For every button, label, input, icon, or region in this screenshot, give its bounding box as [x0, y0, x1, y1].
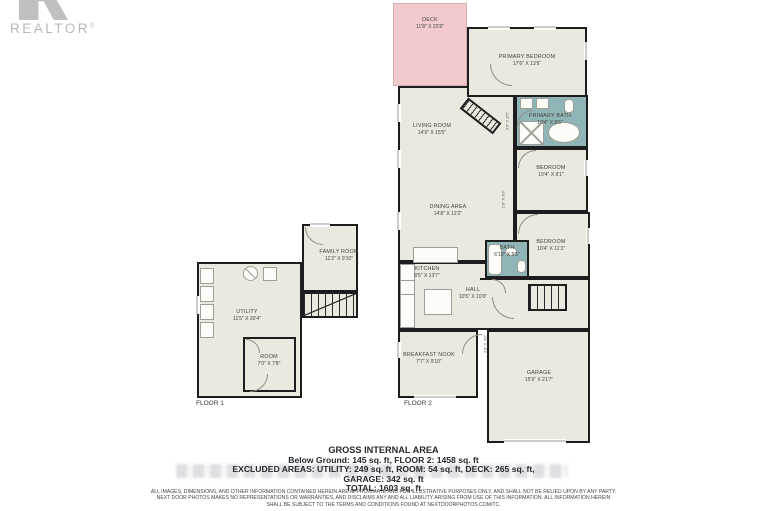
sink-fixture: [520, 98, 533, 109]
closet-label: 3'8" X 4'6": [483, 335, 488, 353]
shelf-fixture: [200, 322, 214, 338]
closet-label: 3'6" X 8'5": [505, 112, 510, 130]
shelf-fixture: [200, 304, 214, 320]
toilet-fixture: [564, 99, 574, 113]
room-label-bath: BATH 6'10" X 5'2": [494, 244, 519, 260]
room-label-garage: GARAGE 15'9" X 21'7": [525, 369, 553, 385]
realtor-logo-icon: [10, 0, 84, 20]
garage-door-opening: [504, 439, 566, 444]
room-label-room: ROOM 7'0" X 7'8": [258, 353, 281, 369]
floorplan-page: REALTOR® DECK 11'8" X 22'8": [0, 0, 767, 511]
room-label-living-room: LIVING ROOM 14'9" X 15'5": [413, 122, 451, 138]
floor2-label: FLOOR 2: [404, 400, 432, 407]
realtor-logo: REALTOR®: [10, 0, 120, 36]
shelf-fixture: [200, 286, 214, 302]
room-garage: [487, 330, 590, 443]
room-label-hall: HALL 10'5" X 10'0": [459, 286, 487, 302]
appliance-fixture: [263, 267, 277, 281]
window: [534, 25, 556, 30]
window: [584, 42, 589, 60]
window: [396, 104, 401, 122]
window: [586, 228, 591, 244]
room-label-primary-bath: PRIMARY BATH 10'4" X 8'6": [529, 112, 571, 128]
shelf-fixture: [200, 268, 214, 284]
toilet-fixture: [517, 260, 526, 273]
window: [584, 160, 589, 176]
window: [396, 212, 401, 230]
stairs-floor2: [528, 284, 567, 311]
room-label-breakfast-nook: BREAKFAST NOOK 7'7" X 9'10": [403, 351, 455, 367]
window: [195, 296, 200, 314]
room-label-deck: DECK 11'8" X 22'8": [416, 16, 444, 32]
area-summary: GROSS INTERNAL AREA Below Ground: 145 sq…: [0, 446, 767, 494]
stove-fixture: [400, 280, 415, 295]
room-label-bedroom-2: BEDROOM 10'4" X 11'3": [536, 238, 565, 254]
floor1-label: FLOOR 1: [196, 400, 224, 407]
window: [396, 342, 401, 358]
room-label-kitchen: KITCHEN 8'5" X 13'7": [414, 265, 439, 281]
dining-cabinet: [413, 247, 458, 263]
realtor-logo-text: REALTOR®: [10, 21, 120, 36]
sink-fixture: [536, 98, 549, 109]
room-label-primary-bedroom: PRIMARY BEDROOM 17'6" X 13'9": [499, 53, 556, 69]
disclaimer: ALL IMAGES, DIMENSIONS, AND OTHER INFORM…: [0, 489, 767, 508]
closet-label: 2'8" X 8'3": [501, 190, 506, 208]
room-label-utility: UTILITY 11'5" X 20'4": [233, 308, 261, 324]
room-label-bedroom-1: BEDROOM 10'4" X 9'1": [536, 164, 565, 180]
water-heater-fixture: [243, 266, 258, 281]
kitchen-island: [424, 289, 452, 315]
room-living-dining: [398, 86, 515, 262]
room-label-family-room: FAMILY ROOM 11'2" X 9'10": [319, 248, 358, 264]
window: [396, 150, 401, 168]
window: [488, 25, 510, 30]
kitchen-counter: [400, 264, 415, 328]
disclaimer-line3: SHALL BE SUBJECT TO THE TERMS AND CONDIT…: [0, 502, 767, 508]
stairs-floor1: [302, 292, 358, 318]
room-label-dining-area: DINING AREA 14'8" X 12'2": [430, 203, 467, 219]
